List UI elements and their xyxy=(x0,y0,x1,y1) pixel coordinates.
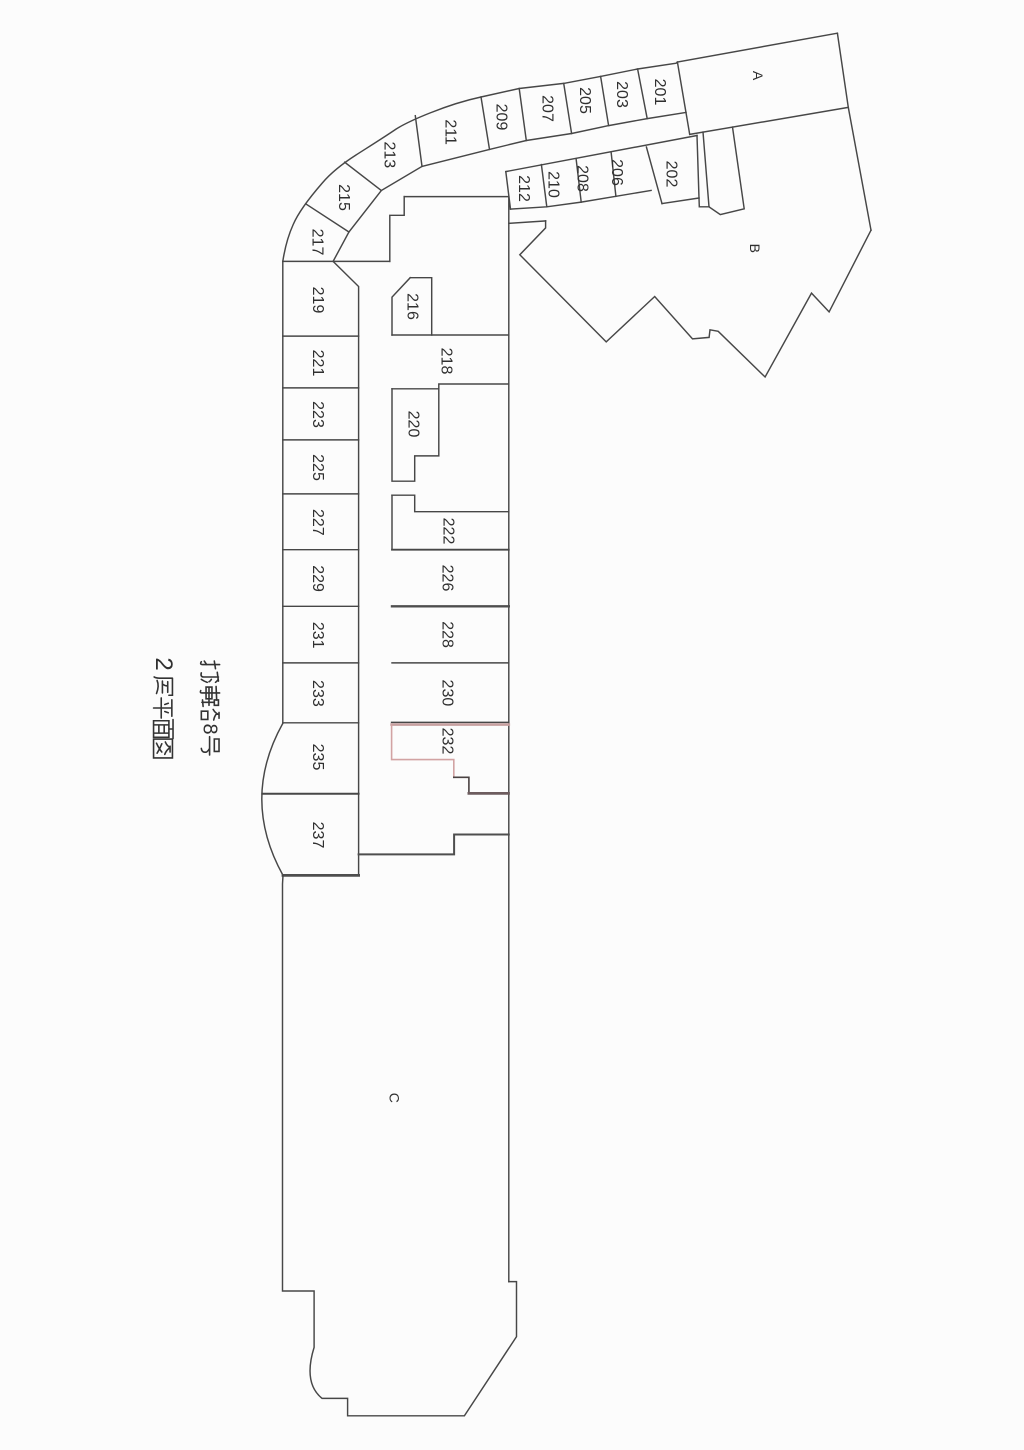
svg-text:205: 205 xyxy=(576,87,593,114)
svg-text:219: 219 xyxy=(309,287,326,314)
svg-text:232: 232 xyxy=(438,728,455,755)
svg-text:218: 218 xyxy=(437,348,454,375)
svg-text:206: 206 xyxy=(608,159,625,186)
svg-text:231: 231 xyxy=(309,622,326,649)
svg-text:225: 225 xyxy=(309,454,326,481)
svg-text:210: 210 xyxy=(544,171,561,198)
svg-text:2: 2 xyxy=(150,657,177,670)
svg-text:215: 215 xyxy=(335,184,352,211)
svg-text:217: 217 xyxy=(309,229,326,256)
svg-text:226: 226 xyxy=(438,565,455,592)
svg-text:212: 212 xyxy=(515,175,532,202)
svg-text:202: 202 xyxy=(662,161,679,188)
svg-text:222: 222 xyxy=(439,518,456,545)
svg-text:207: 207 xyxy=(538,95,555,122)
svg-text:211: 211 xyxy=(442,119,459,145)
svg-text:203: 203 xyxy=(613,81,630,108)
svg-text:229: 229 xyxy=(309,565,326,592)
svg-text:237: 237 xyxy=(309,822,326,849)
svg-text:221: 221 xyxy=(309,350,326,377)
svg-text:220: 220 xyxy=(404,411,421,438)
svg-text:B: B xyxy=(747,244,763,253)
svg-text:228: 228 xyxy=(438,621,455,648)
svg-text:227: 227 xyxy=(309,509,326,536)
svg-text:201: 201 xyxy=(651,79,668,106)
svg-text:209: 209 xyxy=(492,104,509,131)
svg-text:216: 216 xyxy=(403,293,420,320)
svg-text:235: 235 xyxy=(309,744,326,771)
svg-text:C: C xyxy=(387,1093,403,1103)
svg-text:230: 230 xyxy=(438,680,455,707)
svg-text:223: 223 xyxy=(309,401,326,428)
svg-text:233: 233 xyxy=(309,680,326,707)
svg-text:A: A xyxy=(750,71,766,81)
svg-text:8: 8 xyxy=(199,723,221,734)
svg-text:213: 213 xyxy=(381,141,398,168)
svg-text:208: 208 xyxy=(573,165,590,192)
